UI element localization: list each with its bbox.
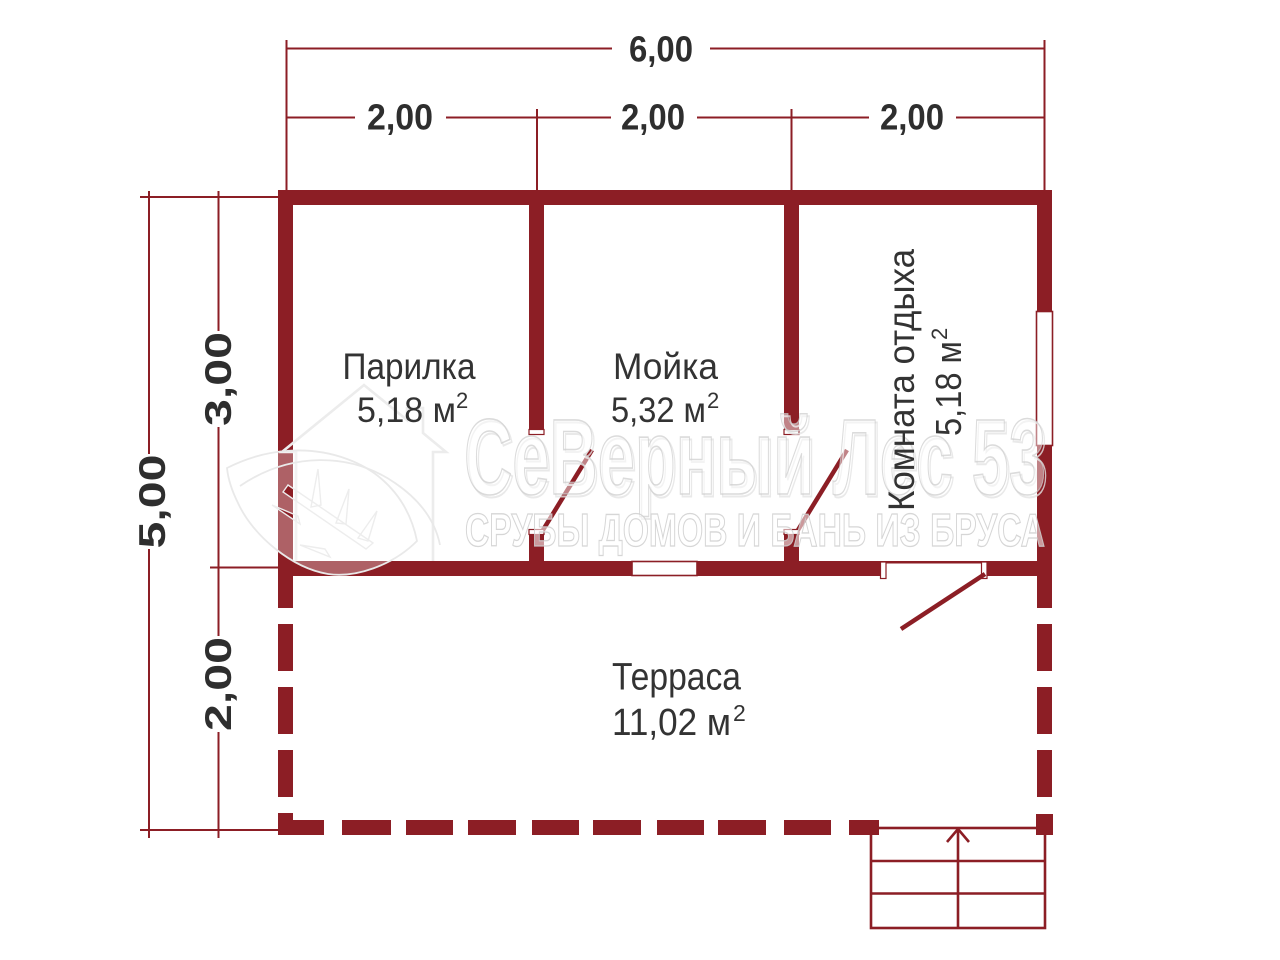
- svg-text:Терраса: Терраса: [612, 657, 742, 699]
- svg-text:2: 2: [733, 700, 746, 726]
- svg-text:11,02 м: 11,02 м: [612, 702, 731, 744]
- svg-text:5,18 м: 5,18 м: [357, 391, 456, 430]
- svg-text:Мойка: Мойка: [613, 346, 718, 387]
- svg-text:6,00: 6,00: [629, 29, 693, 70]
- svg-text:2,00: 2,00: [367, 97, 433, 138]
- svg-text:5,32 м: 5,32 м: [611, 391, 706, 430]
- svg-text:2,00: 2,00: [880, 97, 944, 138]
- svg-text:Парилка: Парилка: [343, 346, 476, 387]
- svg-text:5,00: 5,00: [132, 455, 173, 549]
- svg-text:2,00: 2,00: [198, 637, 239, 731]
- svg-text:5,18 м: 5,18 м: [928, 341, 969, 436]
- svg-text:СРУБЫ ДОМОВ И БАНЬ ИЗ БРУСА: СРУБЫ ДОМОВ И БАНЬ ИЗ БРУСА: [465, 504, 1045, 556]
- svg-text:2,00: 2,00: [621, 97, 685, 138]
- svg-text:Комната отдыха: Комната отдыха: [881, 249, 922, 511]
- svg-text:2: 2: [456, 388, 468, 413]
- svg-text:2: 2: [927, 328, 952, 340]
- svg-text:2: 2: [707, 388, 719, 413]
- svg-text:3,00: 3,00: [198, 332, 239, 426]
